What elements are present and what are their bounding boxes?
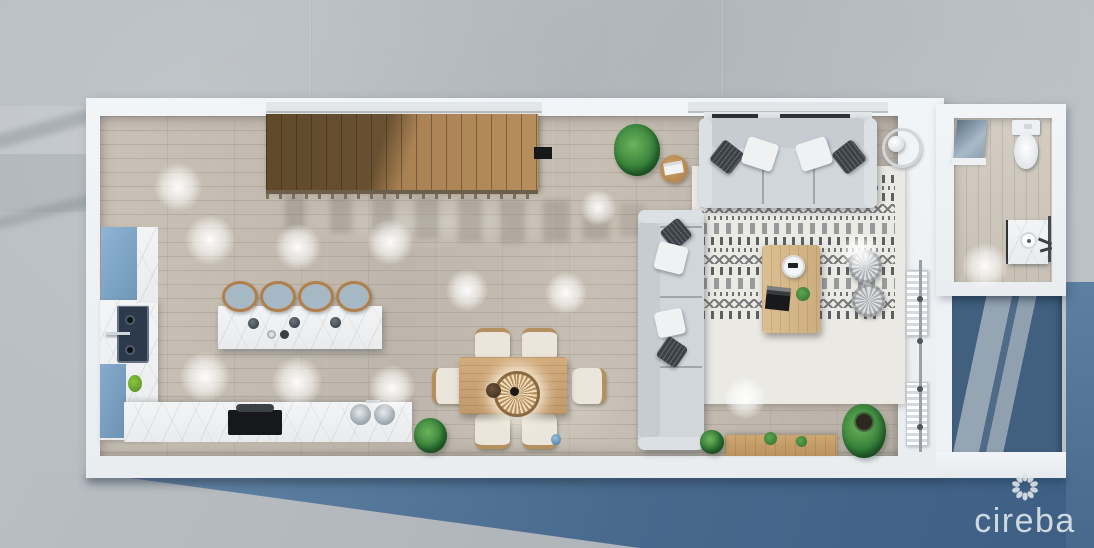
door-handle	[917, 424, 923, 430]
railing-shadow	[543, 200, 569, 242]
table-plant-small	[796, 287, 810, 301]
island-small-sink	[267, 330, 276, 339]
stair-landing-mat	[534, 147, 552, 159]
cireba-logo-text: cireba	[960, 502, 1090, 541]
bar-stool	[298, 281, 334, 312]
railing-shadow	[458, 198, 482, 242]
potted-plant-large	[842, 404, 886, 458]
bench-pot-plant	[796, 436, 807, 447]
railing-shadow	[500, 199, 525, 243]
bench-wood	[725, 435, 837, 456]
potted-plant	[700, 430, 724, 454]
tall-cabinet-blue	[101, 227, 137, 303]
plant-pot-dark	[856, 414, 872, 430]
round-sink-bowl	[374, 404, 395, 425]
pouf	[852, 284, 885, 317]
cabinet-blue-lower	[100, 364, 126, 438]
round-sink-faucet	[366, 400, 380, 403]
railing-shadow	[415, 197, 439, 239]
sofa-backrest	[711, 118, 865, 148]
sofa-armrest	[864, 118, 877, 208]
door-handle	[917, 338, 923, 344]
kitchen-island	[218, 306, 382, 349]
rug-band	[702, 223, 895, 234]
toilet-bowl	[1014, 133, 1038, 169]
pouf	[849, 250, 882, 283]
sofa-armrest	[638, 437, 704, 450]
decor-blue-glass	[551, 434, 561, 445]
floor-plan-render: cireba	[0, 0, 1094, 548]
bar-stool	[222, 281, 258, 312]
round-sink-bowl	[350, 404, 371, 425]
rug-band	[702, 216, 895, 220]
window-band	[266, 102, 542, 113]
island-tap	[248, 318, 259, 329]
railing-shadow	[583, 202, 609, 240]
railing-shadow	[372, 196, 394, 236]
book-black	[765, 286, 791, 311]
potted-plant-palm	[614, 124, 660, 176]
shower-glass	[953, 120, 987, 162]
cooktop	[228, 410, 282, 435]
rug-band	[702, 237, 895, 245]
door-handle	[917, 296, 923, 302]
cireba-logo-icon	[1010, 472, 1040, 502]
dining-chair	[572, 368, 606, 404]
bar-stool	[260, 281, 296, 312]
floor-lamp-bulb	[888, 136, 904, 152]
railing-shadow	[330, 195, 352, 233]
sink-drain	[127, 347, 133, 353]
door-handle	[917, 386, 923, 392]
stair-balusters	[266, 194, 538, 199]
tray-decor	[788, 263, 798, 268]
potted-plant	[414, 418, 447, 453]
concrete-seam	[722, 0, 724, 98]
bench-pot-plant	[764, 432, 777, 445]
dining-chair	[475, 413, 510, 449]
island-small-tap	[280, 330, 289, 339]
bar-stool	[336, 281, 372, 312]
sink-drain	[127, 317, 133, 323]
kitchen-counter-left-top	[137, 227, 158, 303]
sink-faucet	[106, 332, 130, 335]
louver-shutter	[906, 270, 928, 336]
counter-decor-green	[128, 375, 142, 392]
toilet-flush-button	[1024, 124, 1032, 129]
island-tap	[289, 317, 300, 328]
table-bowl	[486, 383, 501, 398]
cireba-logo: cireba	[960, 472, 1090, 538]
staircase	[266, 114, 538, 190]
concrete-seam	[310, 0, 312, 98]
louver-shutter	[906, 382, 928, 446]
terrace-shaded	[952, 296, 1062, 452]
vanity-drain	[1027, 239, 1031, 243]
cooktop-hood	[236, 404, 274, 412]
railing-shadow	[285, 194, 305, 230]
sofa-armrest	[699, 118, 712, 208]
pendant-light-center	[510, 387, 519, 396]
island-tap	[330, 317, 341, 328]
shower-sill	[952, 158, 986, 165]
towel-rail	[1048, 216, 1051, 262]
